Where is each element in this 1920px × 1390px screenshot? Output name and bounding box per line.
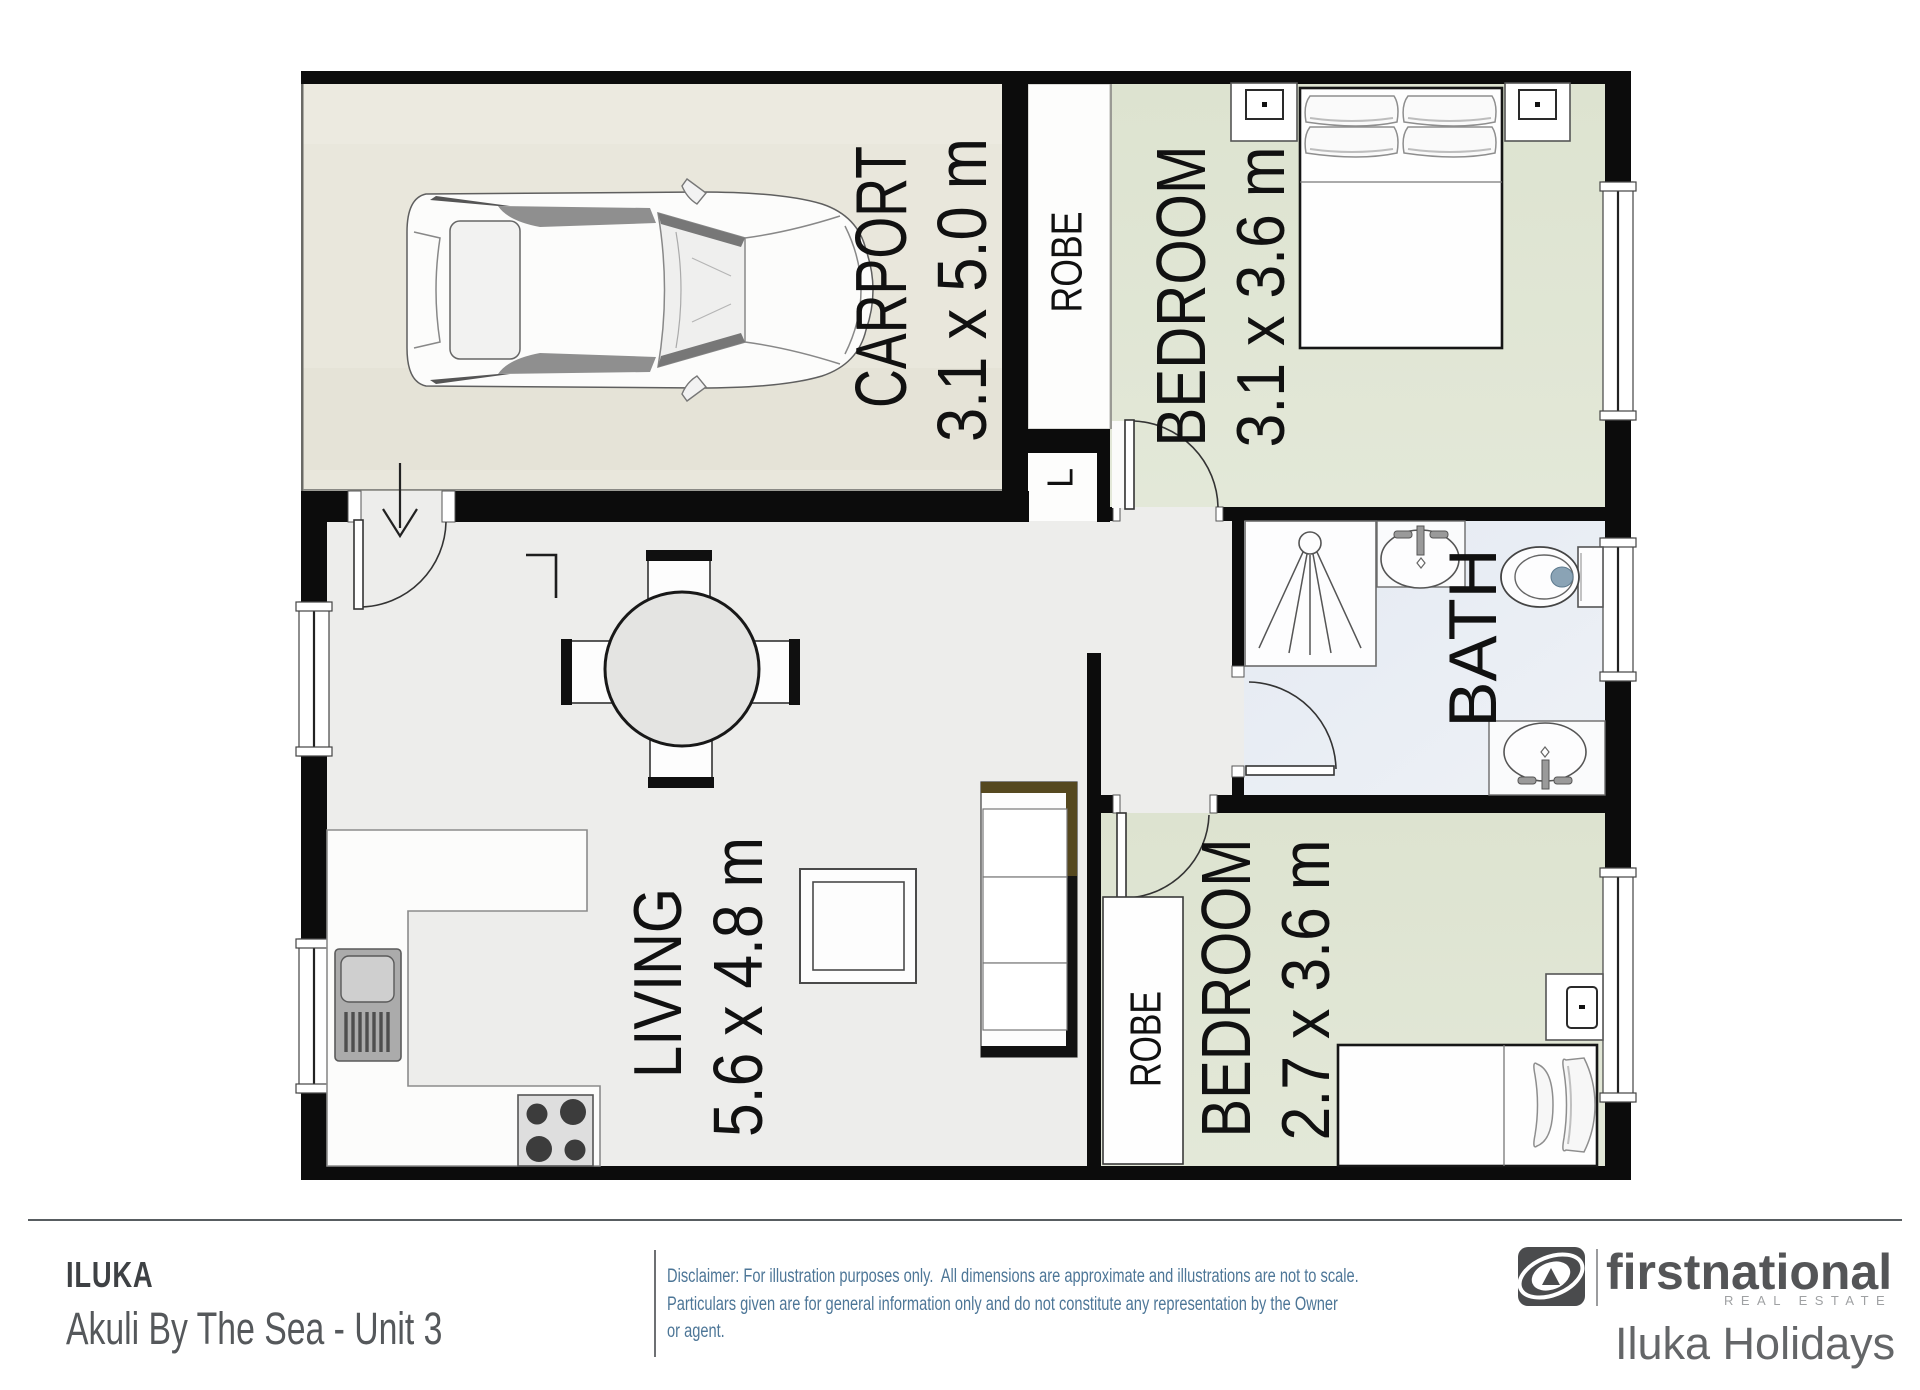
svg-text:BEDROOM: BEDROOM [1142, 146, 1220, 447]
svg-text:3.1 x 3.6 m: 3.1 x 3.6 m [1223, 147, 1299, 448]
svg-text:CARPORT: CARPORT [842, 146, 922, 408]
svg-text:L: L [1040, 468, 1081, 488]
svg-text:2.7 x 3.6 m: 2.7 x 3.6 m [1268, 840, 1344, 1141]
svg-text:5.6 x 4.8 m: 5.6 x 4.8 m [699, 837, 777, 1137]
svg-text:BEDROOM: BEDROOM [1187, 839, 1265, 1138]
svg-text:ROBE: ROBE [1043, 212, 1092, 313]
svg-text:LIVING: LIVING [620, 888, 696, 1078]
svg-text:BATH: BATH [1435, 549, 1511, 728]
svg-text:3.1 x 5.0 m: 3.1 x 5.0 m [923, 138, 1001, 442]
svg-text:ROBE: ROBE [1122, 991, 1171, 1087]
